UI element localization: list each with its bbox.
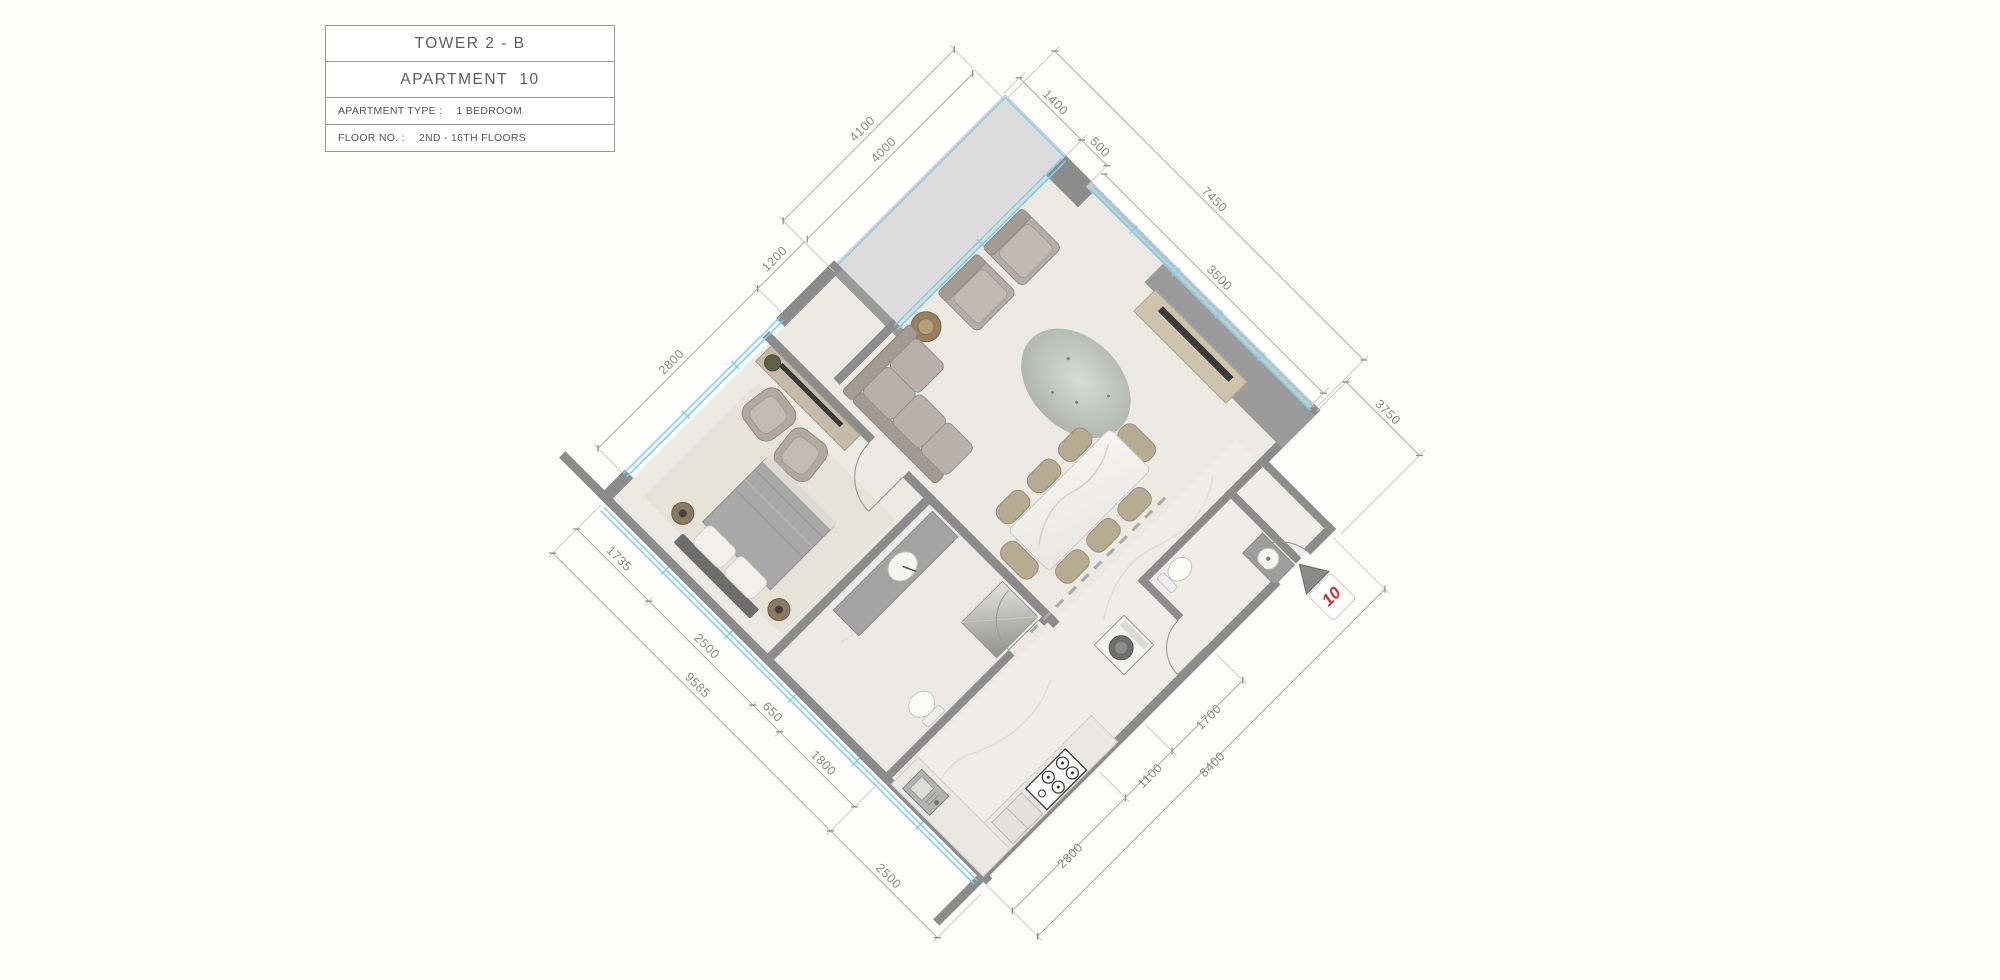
- dim-4100: 4100: [847, 113, 878, 144]
- dim-9585: 9585: [682, 670, 713, 701]
- dim-8400: 8400: [1197, 749, 1228, 780]
- dim-1800: 1800: [808, 748, 839, 779]
- dim-2500-inner: 2500: [691, 631, 722, 662]
- wall-stub-left: [559, 451, 610, 502]
- dim-4000: 4000: [868, 134, 899, 165]
- dim-2500-outer: 2500: [873, 861, 904, 892]
- dim-1700: 1700: [1193, 702, 1224, 733]
- unit-entry-marker: 10: [1288, 553, 1356, 621]
- page: TOWER 2 - B APARTMENT 10 APARTMENT TYPE …: [0, 0, 2000, 980]
- floor-plan-svg: 7450 3750 1400 500 3500 4100 4000 1200 2…: [0, 0, 2000, 980]
- dim-650: 650: [760, 699, 786, 725]
- dim-2800-left: 2800: [656, 347, 687, 378]
- dim-1100: 1100: [1135, 761, 1165, 791]
- dim-2800-right: 2800: [1055, 840, 1086, 871]
- rotated-plan: 7450 3750 1400 500 3500 4100 4000 1200 2…: [486, 0, 1506, 980]
- dim-1200: 1200: [759, 243, 790, 274]
- dim-1735: 1735: [604, 543, 635, 574]
- wall-stub-bottom: [933, 875, 983, 925]
- dim-500: 500: [1087, 134, 1113, 160]
